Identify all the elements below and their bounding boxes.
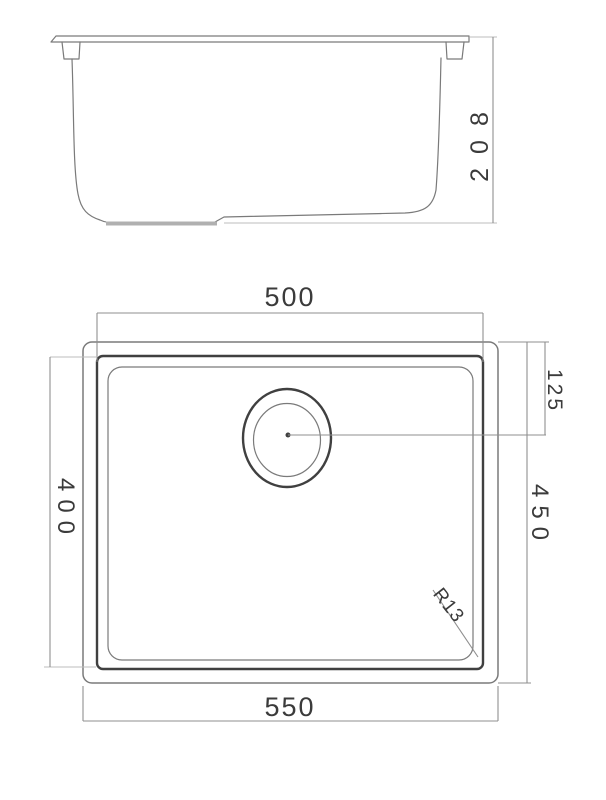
corner-radius-label: R13 [428,584,468,627]
bowl-width-dimension-label: 500 [264,282,315,312]
plan-view: 500 550 400 [44,282,566,722]
overall-width-dimension: 550 [83,686,498,722]
drain-offset-dimension-label: 125 [543,369,566,413]
bowl-top-edge [97,356,483,669]
sink-outer-edge [83,342,498,683]
bowl-depth-dimension-label: 400 [52,478,79,542]
overall-width-dimension-label: 550 [264,692,315,722]
drain-inner-circle [254,404,321,477]
drain [243,389,546,487]
corner-radius-callout: R13 [428,584,478,657]
mounting-clip-right [446,42,464,59]
overall-depth-dimension-label: 450 [526,484,553,548]
bowl-bottom-edge [108,367,473,660]
bowl-depth-dimension: 400 [44,357,96,667]
mounting-clip-left [62,42,80,59]
drawing-canvas: 208 [0,0,606,800]
height-dimension: 208 [224,37,497,223]
sink-rim-profile [51,36,469,42]
sink-technical-drawing: 208 [0,0,606,800]
height-dimension-label: 208 [466,98,494,182]
sink-body-profile [72,58,441,223]
bowl-width-dimension: 500 [97,282,483,362]
side-view: 208 [51,36,497,224]
drain-offset-dimension: 125 [543,342,566,435]
